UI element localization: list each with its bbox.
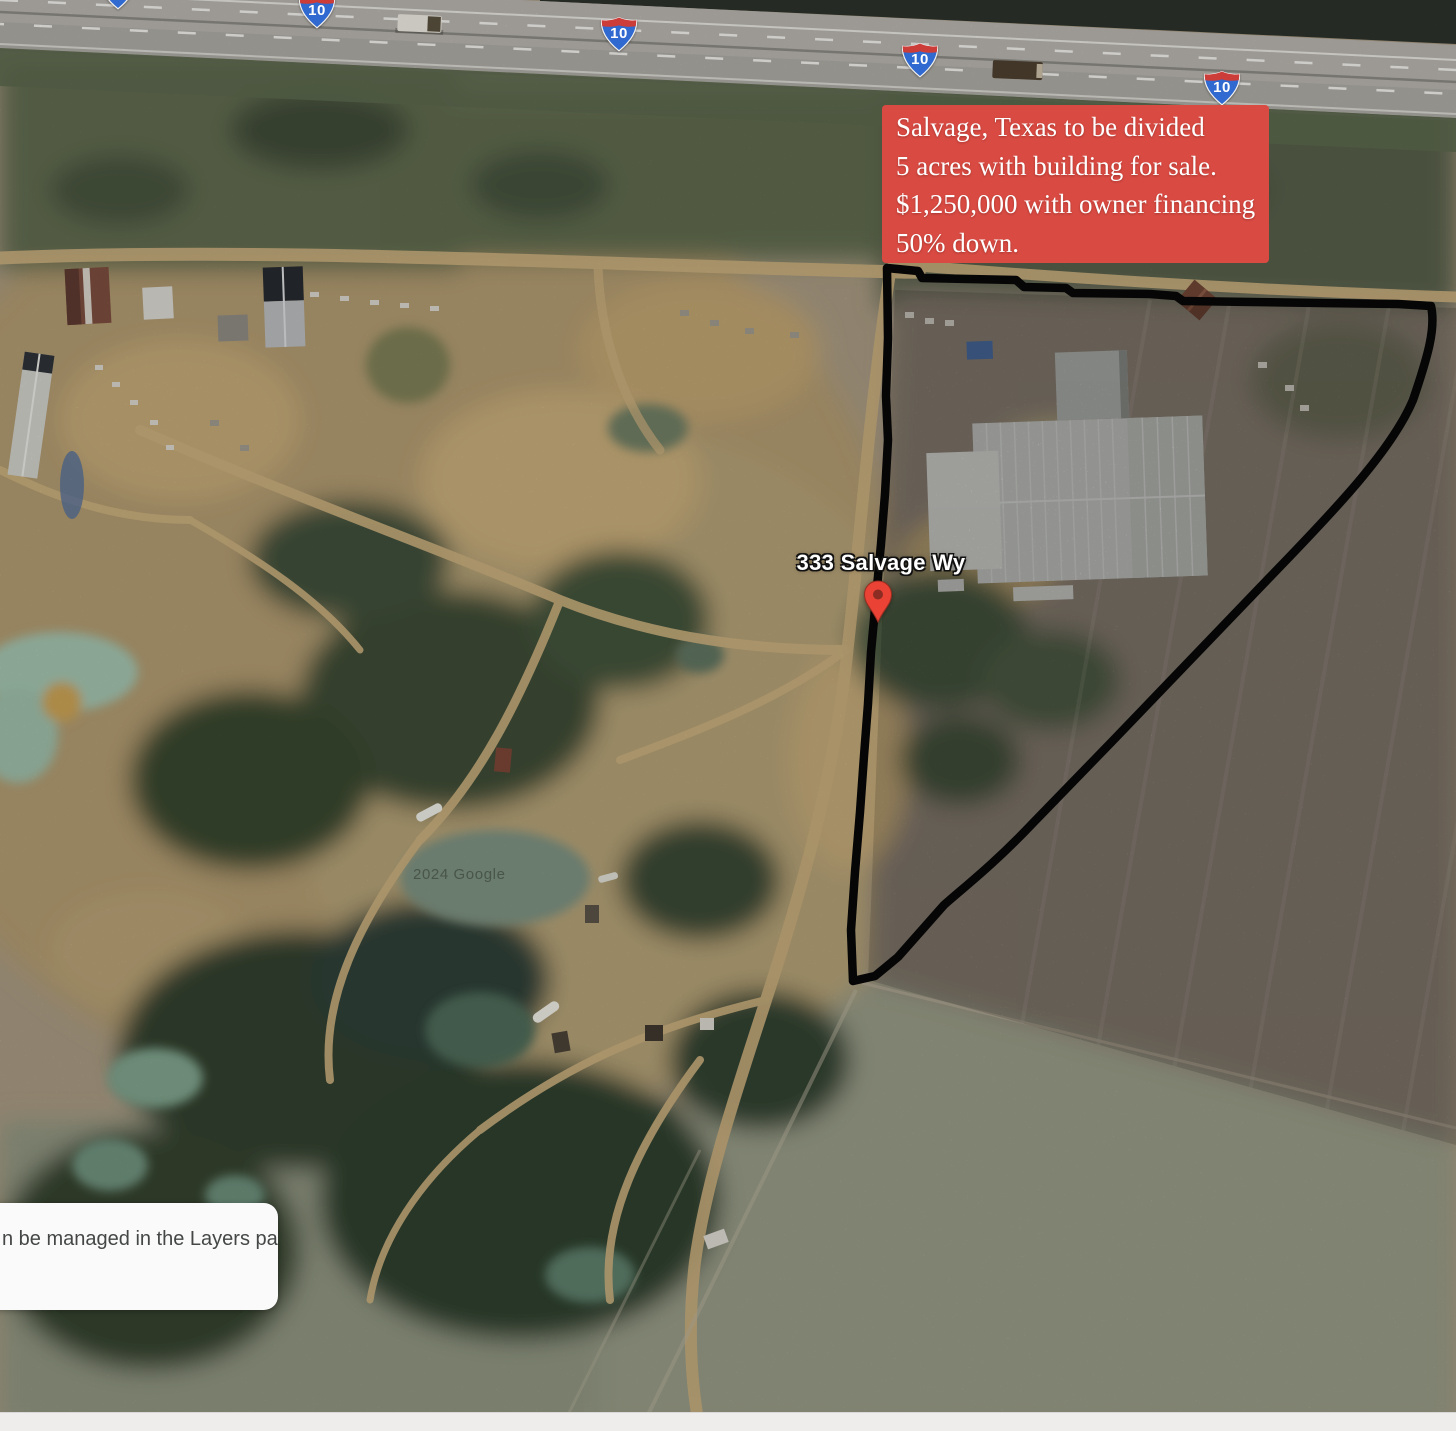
interstate-10-shield: 10 [900, 42, 940, 78]
shield-number: 10 [900, 42, 940, 78]
map-viewport: 10 10 10 10 10 Salvage, Texas to be divi… [0, 0, 1456, 1431]
annotation-box: Salvage, Texas to be divided 5 acres wit… [882, 105, 1269, 263]
interstate-10-shield: 10 [1202, 70, 1242, 106]
shield-number: 10 [297, 0, 337, 29]
shield-number: 10 [1202, 70, 1242, 106]
bottom-bar [0, 1412, 1456, 1431]
layers-toast-text: n be managed in the Layers panel [2, 1228, 278, 1250]
annotation-line: 50% down. [896, 224, 1257, 263]
address-label: 333 Salvage Wy [796, 550, 966, 576]
shield-number: 10 [599, 16, 639, 52]
annotation-line: Salvage, Texas to be divided [896, 108, 1257, 147]
annotation-line: $1,250,000 with owner financing [896, 185, 1257, 224]
map-pin-icon[interactable] [863, 580, 893, 624]
google-watermark: 2024 Google [413, 866, 506, 883]
layers-toast: n be managed in the Layers panel [0, 1203, 278, 1310]
annotation-line: 5 acres with building for sale. [896, 147, 1257, 186]
interstate-10-shield: 10 [599, 16, 639, 52]
interstate-10-shield: 10 [98, 0, 138, 10]
shield-number: 10 [98, 0, 138, 10]
interstate-10-shield: 10 [297, 0, 337, 29]
